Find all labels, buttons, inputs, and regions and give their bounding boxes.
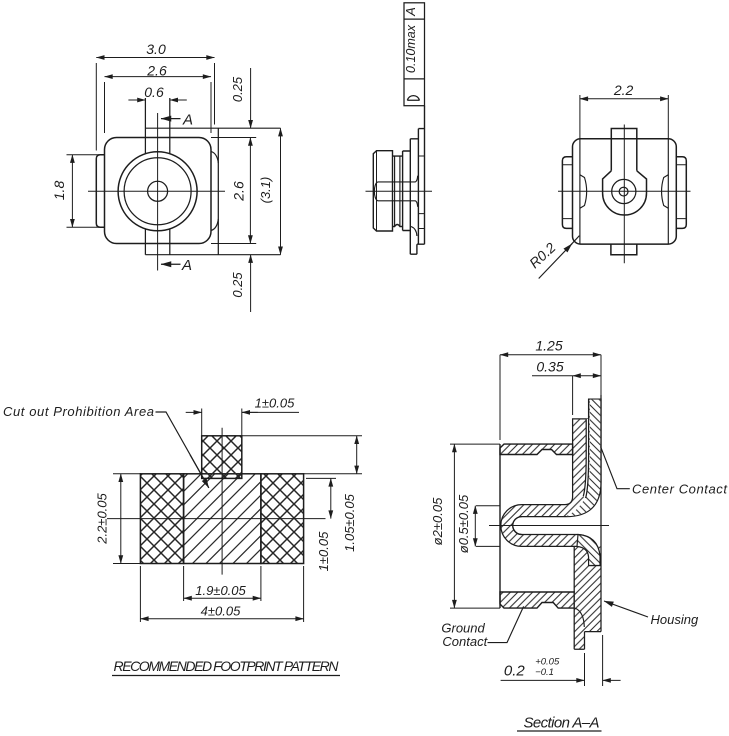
svg-text:Contact: Contact [442, 634, 488, 649]
svg-text:Section A–A: Section A–A [524, 715, 600, 732]
svg-text:0.25: 0.25 [230, 272, 245, 298]
svg-text:1±0.05: 1±0.05 [255, 396, 295, 411]
svg-text:2.2: 2.2 [613, 82, 634, 98]
svg-text:2.6: 2.6 [146, 62, 167, 78]
svg-text:ø0.5±0.05: ø0.5±0.05 [456, 494, 471, 553]
svg-text:A: A [182, 111, 193, 128]
svg-text:Cut out Prohibition Area: Cut out Prohibition Area [3, 404, 154, 419]
svg-text:3.0: 3.0 [146, 41, 166, 57]
svg-text:1.8: 1.8 [51, 181, 67, 201]
svg-text:+0.05: +0.05 [535, 657, 560, 668]
svg-text:Center Contact: Center Contact [632, 482, 728, 497]
svg-text:0.10max: 0.10max [404, 24, 418, 73]
svg-text:0.2: 0.2 [504, 663, 526, 680]
svg-text:A: A [181, 257, 192, 274]
svg-text:(3.1): (3.1) [258, 177, 273, 204]
svg-text:0.6: 0.6 [144, 84, 164, 100]
svg-text:A: A [403, 7, 418, 17]
svg-text:2.2±0.05: 2.2±0.05 [95, 492, 110, 544]
svg-text:RECOMMENDED FOOTPRINT PATTERN: RECOMMENDED FOOTPRINT PATTERN [114, 658, 340, 674]
svg-text:4±0.05: 4±0.05 [201, 604, 241, 619]
svg-text:1.05±0.05: 1.05±0.05 [342, 493, 357, 552]
svg-text:0.25: 0.25 [230, 76, 245, 102]
svg-text:2.6: 2.6 [231, 181, 247, 202]
svg-text:ø2±0.05: ø2±0.05 [430, 497, 445, 545]
svg-text:1.9±0.05: 1.9±0.05 [195, 583, 246, 598]
svg-text:1±0.05: 1±0.05 [316, 531, 331, 571]
svg-text:0.35: 0.35 [536, 359, 563, 375]
svg-text:1.25: 1.25 [535, 338, 562, 354]
svg-text:Housing: Housing [651, 612, 699, 627]
svg-text:−0.1: −0.1 [535, 667, 554, 678]
